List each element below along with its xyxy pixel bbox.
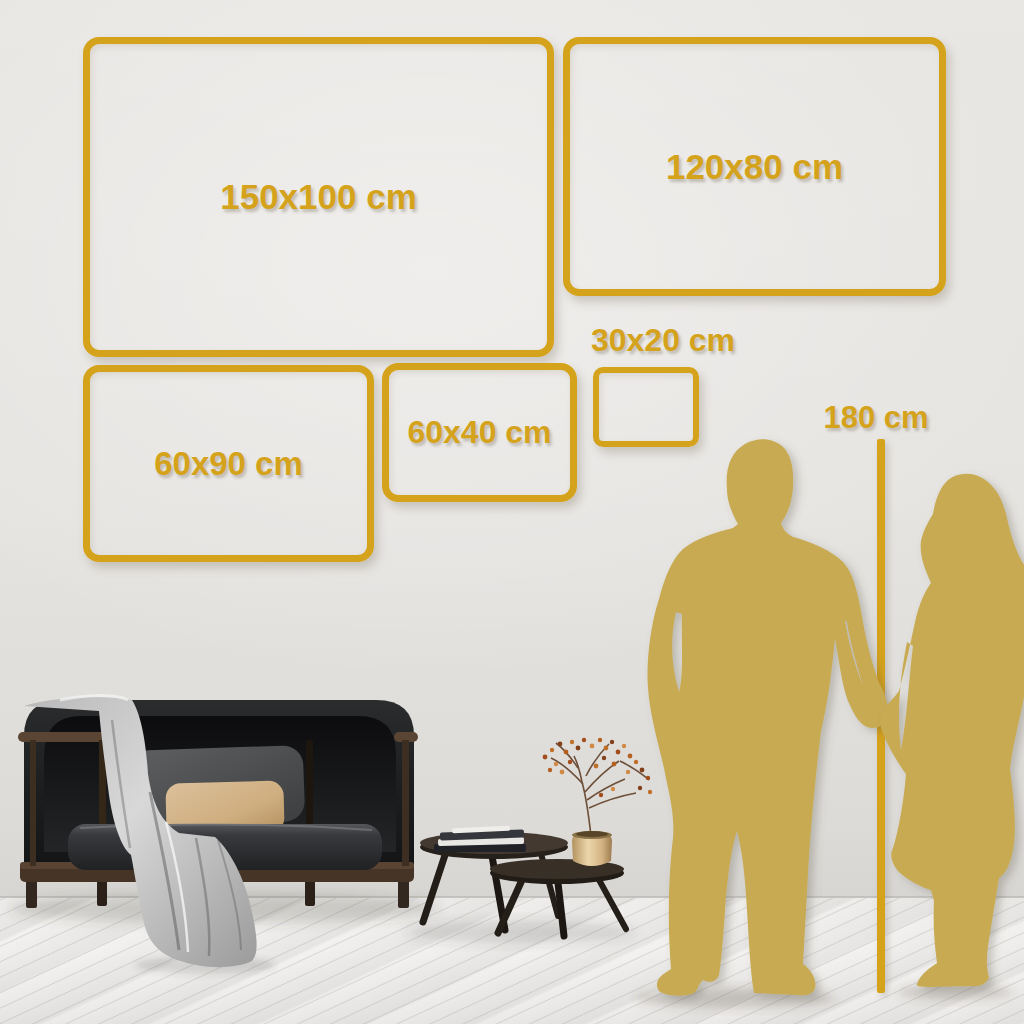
woman-shadow [897, 984, 1013, 1000]
silhouettes-art [0, 0, 1024, 1024]
woman-silhouette [880, 474, 1024, 987]
size-guide-scene: 150x100 cm 120x80 cm 60x90 cm 60x40 cm 3… [0, 0, 1024, 1024]
man-silhouette [647, 439, 887, 995]
